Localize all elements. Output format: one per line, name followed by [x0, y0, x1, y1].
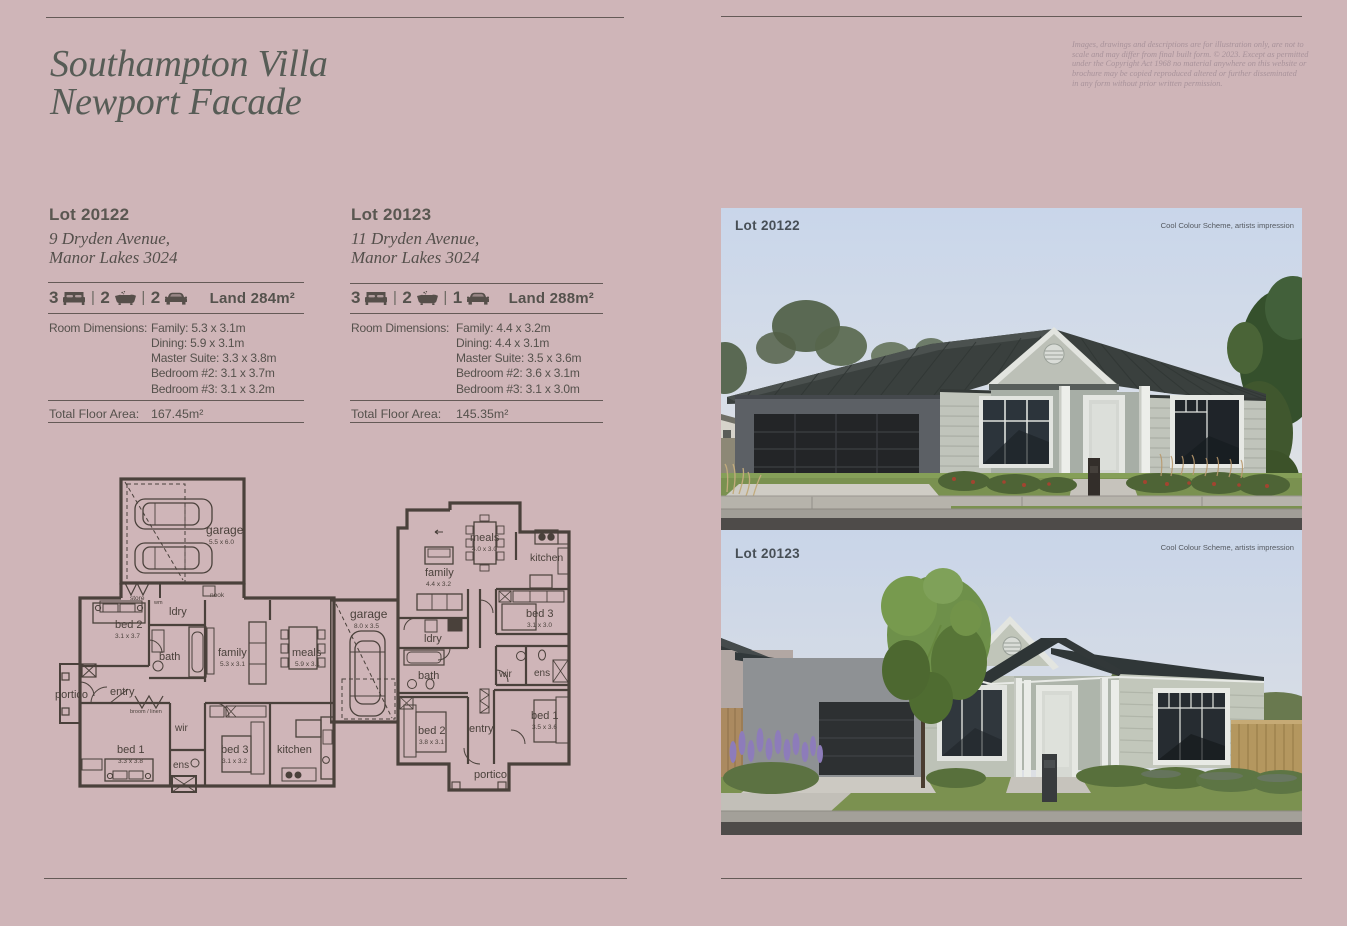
svg-text:garage: garage — [206, 523, 244, 537]
svg-text:bed 1: bed 1 — [531, 710, 559, 722]
svg-text:3.3 x 3.8: 3.3 x 3.8 — [118, 758, 143, 765]
svg-text:garage: garage — [350, 607, 388, 621]
svg-text:3.1 x 3.7: 3.1 x 3.7 — [115, 633, 140, 640]
svg-text:store: store — [130, 595, 145, 602]
svg-text:bath: bath — [159, 651, 180, 663]
svg-text:3.8 x 3.1: 3.8 x 3.1 — [419, 739, 444, 746]
svg-text:family: family — [425, 567, 454, 579]
svg-text:Cool Colour Scheme, artists im: Cool Colour Scheme, artists impression — [1161, 543, 1294, 552]
svg-text:3.1 x 3.2: 3.1 x 3.2 — [222, 758, 247, 765]
svg-text:Cool Colour Scheme, artists im: Cool Colour Scheme, artists impression — [1161, 221, 1294, 230]
svg-text:Lot 20123: Lot 20123 — [735, 546, 800, 561]
svg-text:nook: nook — [210, 592, 225, 599]
svg-text:bed 3: bed 3 — [221, 744, 249, 756]
svg-text:bed 3: bed 3 — [526, 608, 554, 620]
svg-text:ldry: ldry — [424, 633, 442, 645]
svg-text:kitchen: kitchen — [530, 552, 563, 564]
svg-text:bed 2: bed 2 — [418, 725, 446, 737]
svg-text:portico: portico — [474, 769, 507, 781]
svg-text:4.4 x 3.2: 4.4 x 3.2 — [426, 581, 451, 588]
svg-text:wir: wir — [498, 669, 512, 680]
svg-text:ens: ens — [173, 760, 189, 771]
svg-text:3.1 x 3.0: 3.1 x 3.0 — [527, 622, 552, 629]
svg-text:bath: bath — [418, 670, 439, 682]
svg-text:portico: portico — [55, 689, 88, 701]
svg-text:8.0 x 3.5: 8.0 x 3.5 — [354, 623, 379, 630]
svg-text:wm: wm — [153, 600, 163, 606]
svg-text:Lot 20122: Lot 20122 — [735, 218, 800, 233]
svg-text:kitchen: kitchen — [277, 744, 312, 756]
svg-text:family: family — [218, 647, 247, 659]
svg-text:5.5 x 6.0: 5.5 x 6.0 — [209, 539, 234, 546]
svg-text:3.5 x 3.6: 3.5 x 3.6 — [532, 724, 557, 731]
svg-text:4.0 x 3.0: 4.0 x 3.0 — [472, 546, 497, 553]
svg-text:meals: meals — [470, 532, 500, 544]
svg-text:ens: ens — [534, 668, 550, 679]
svg-text:5.9 x 3.1: 5.9 x 3.1 — [295, 661, 320, 668]
svg-text:bed 2: bed 2 — [115, 619, 143, 631]
svg-text:wir: wir — [174, 723, 188, 734]
svg-text:broom / linen: broom / linen — [130, 709, 162, 715]
svg-text:5.3 x 3.1: 5.3 x 3.1 — [220, 661, 245, 668]
svg-text:meals: meals — [292, 647, 322, 659]
svg-text:bed 1: bed 1 — [117, 744, 145, 756]
svg-text:entry: entry — [110, 686, 135, 698]
svg-text:ldry: ldry — [169, 606, 187, 618]
svg-text:entry: entry — [469, 723, 494, 735]
